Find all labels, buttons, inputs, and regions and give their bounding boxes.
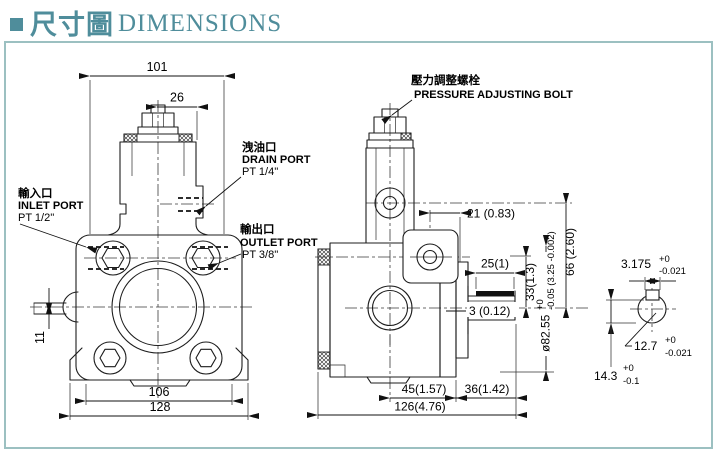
- outlet-label-en: OUTLET PORT: [240, 237, 318, 249]
- dim-45-text: 45(1.57): [402, 382, 447, 396]
- outlet-port-callout: 輸出口 OUTLET PORT PT 3/8'': [219, 222, 318, 263]
- dim-key-width-sup: +0: [659, 254, 670, 265]
- dim-11-text: 11: [33, 331, 47, 344]
- shaft-key: [476, 291, 514, 296]
- dim-key-top-text: 14.3: [594, 369, 618, 383]
- dim-pilot-text: ø82.55: [539, 314, 553, 352]
- dim-key-width-sub: -0.021: [659, 266, 686, 277]
- inlet-port-callout: 輸入口 INLET PORT PT 1/2'': [18, 186, 86, 247]
- dimension-36: 36(1.42): [456, 324, 516, 419]
- dimension-3: 3 (0.12): [446, 302, 519, 318]
- drain-port-callout: 洩油口 DRAIN PORT PT 1/4'': [206, 140, 311, 206]
- dim-33-text: 33(1.3): [523, 263, 537, 301]
- dim-21-text: 21 (0.83): [467, 207, 515, 221]
- adjust-bolt-callout: 壓力調整螺栓 PRESSURE ADJUSTING BOLT: [392, 73, 573, 115]
- adjust-bolt-label-cjk: 壓力調整螺栓: [411, 73, 480, 87]
- dim-25-text: 25(1): [481, 257, 509, 271]
- dimension-drawing: 101 26 11 106 128 洩油口: [0, 0, 720, 457]
- shaft-key-detail: 3.175 +0 -0.021 12.7 +0 -0.021 14.3 +0 -…: [594, 254, 692, 387]
- dim-3-text: 3 (0.12): [469, 304, 510, 318]
- dim-key-top-sub: -0.1: [623, 376, 639, 387]
- dimension-key-width: 3.175 +0 -0.021: [621, 254, 686, 290]
- inlet-label-cjk: 輸入口: [18, 186, 53, 200]
- gasket-hatch-bottom: [318, 352, 330, 369]
- dimension-shaft-dia: 12.7 +0 -0.021: [625, 313, 692, 359]
- dimension-25: 25(1): [476, 257, 514, 290]
- outlet-label-cjk: 輸出口: [240, 222, 275, 236]
- dimension-66: 66 (2.60): [563, 204, 577, 307]
- dim-key-width-text: 3.175: [621, 257, 651, 271]
- drain-label-cjk: 洩油口: [242, 140, 277, 154]
- dimension-11: 11: [33, 288, 49, 344]
- drain-label-thread: PT 1/4'': [242, 166, 278, 178]
- dim-pilot-sup: +0: [535, 299, 546, 310]
- dimension-26: 26: [157, 91, 197, 141]
- dim-106-text: 106: [149, 385, 170, 399]
- dimension-101: 101: [90, 60, 224, 234]
- compensator-boss: [403, 230, 458, 283]
- mount-bolt-right: [190, 342, 222, 374]
- adjust-bolt-label-en: PRESSURE ADJUSTING BOLT: [414, 89, 573, 101]
- dim-126-text: 126(4.76): [394, 400, 445, 414]
- side-view: 壓力調整螺栓 PRESSURE ADJUSTING BOLT 21 (0.83)…: [315, 73, 588, 419]
- dim-key-top-sup: +0: [623, 363, 634, 374]
- dim-26-text: 26: [170, 91, 184, 105]
- outlet-label-thread: PT 3/8'': [242, 249, 278, 261]
- gasket-hatch-top: [318, 249, 330, 265]
- dim-shaft-dia-sup: +0: [665, 335, 676, 346]
- keyway-notch: [646, 290, 659, 300]
- inlet-label-en: INLET PORT: [18, 200, 84, 212]
- front-view: 101 26 11 106 128 洩油口: [18, 60, 318, 420]
- drain-label-en: DRAIN PORT: [242, 154, 311, 166]
- inlet-label-thread: PT 1/2'': [18, 212, 54, 224]
- seal-hatch-right: [179, 134, 192, 142]
- seal-hatch-left: [124, 134, 137, 142]
- dim-shaft-dia-sub: -0.021: [665, 348, 692, 359]
- mount-bolt-left: [94, 342, 126, 374]
- dim-66-text: 66 (2.60): [563, 228, 577, 276]
- dim-shaft-dia-text: 12.7: [634, 339, 658, 353]
- dim-pilot-sub: -0.05 (3.25 -0.002): [546, 231, 557, 310]
- dim-36-text: 36(1.42): [465, 382, 510, 396]
- dim-128-text: 128: [150, 400, 171, 414]
- dim-101-text: 101: [147, 60, 168, 74]
